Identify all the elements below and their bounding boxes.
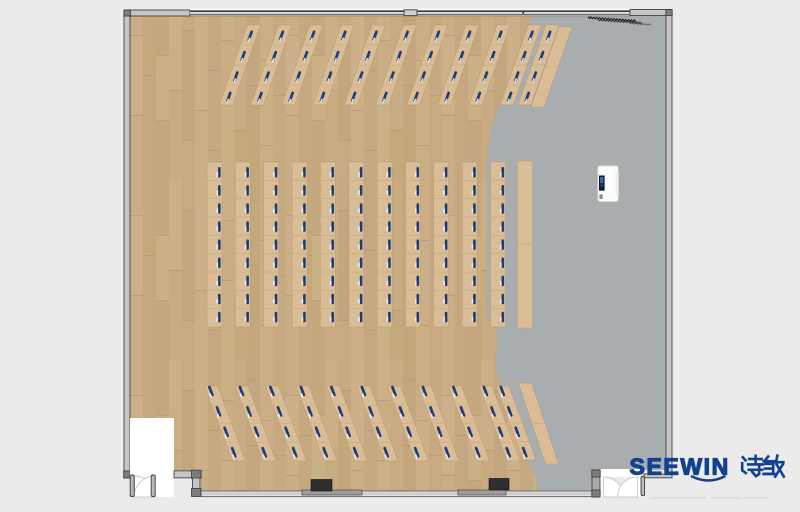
svg-text:SEEWIN: SEEWIN — [630, 454, 730, 480]
